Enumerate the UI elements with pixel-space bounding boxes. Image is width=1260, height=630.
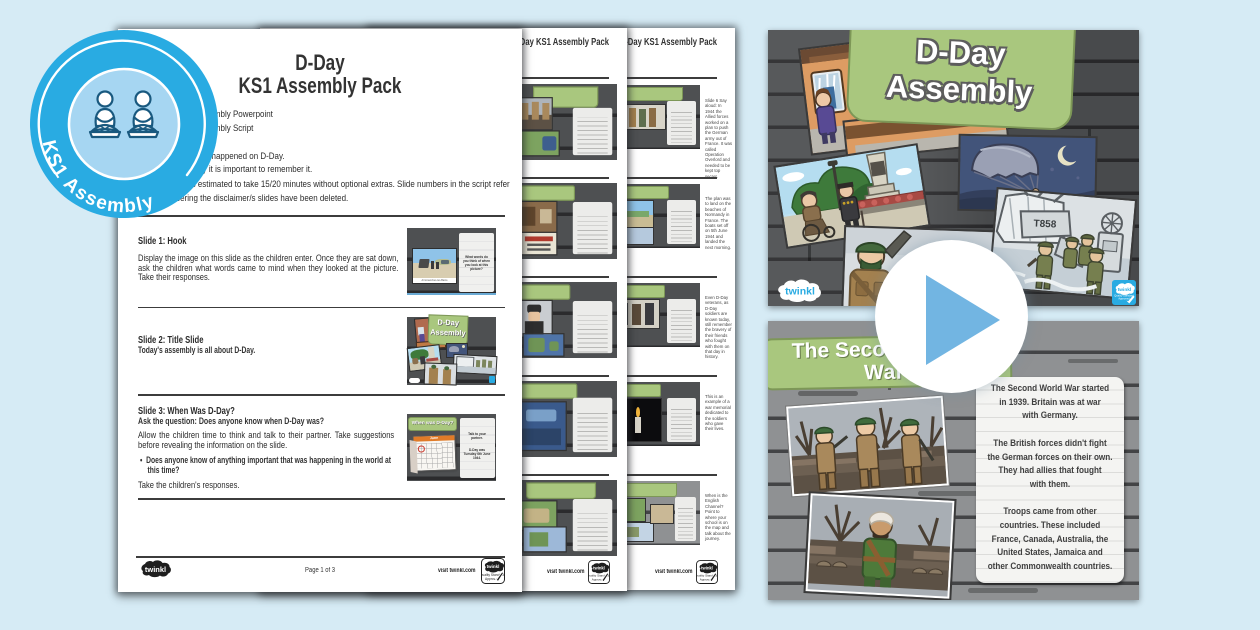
svg-text:Approved: Approved — [1118, 297, 1130, 301]
svg-text:twinkl: twinkl — [593, 565, 605, 570]
svg-text:twinkl: twinkl — [701, 565, 713, 570]
svg-text:twinkl: twinkl — [145, 565, 166, 574]
svg-text:Quality Standard: Quality Standard — [1114, 293, 1134, 297]
svg-text:twinkl: twinkl — [785, 286, 815, 298]
svg-text:T858: T858 — [1033, 218, 1057, 230]
svg-text:twinkl: twinkl — [487, 564, 500, 569]
svg-text:twinkl: twinkl — [1118, 287, 1132, 293]
